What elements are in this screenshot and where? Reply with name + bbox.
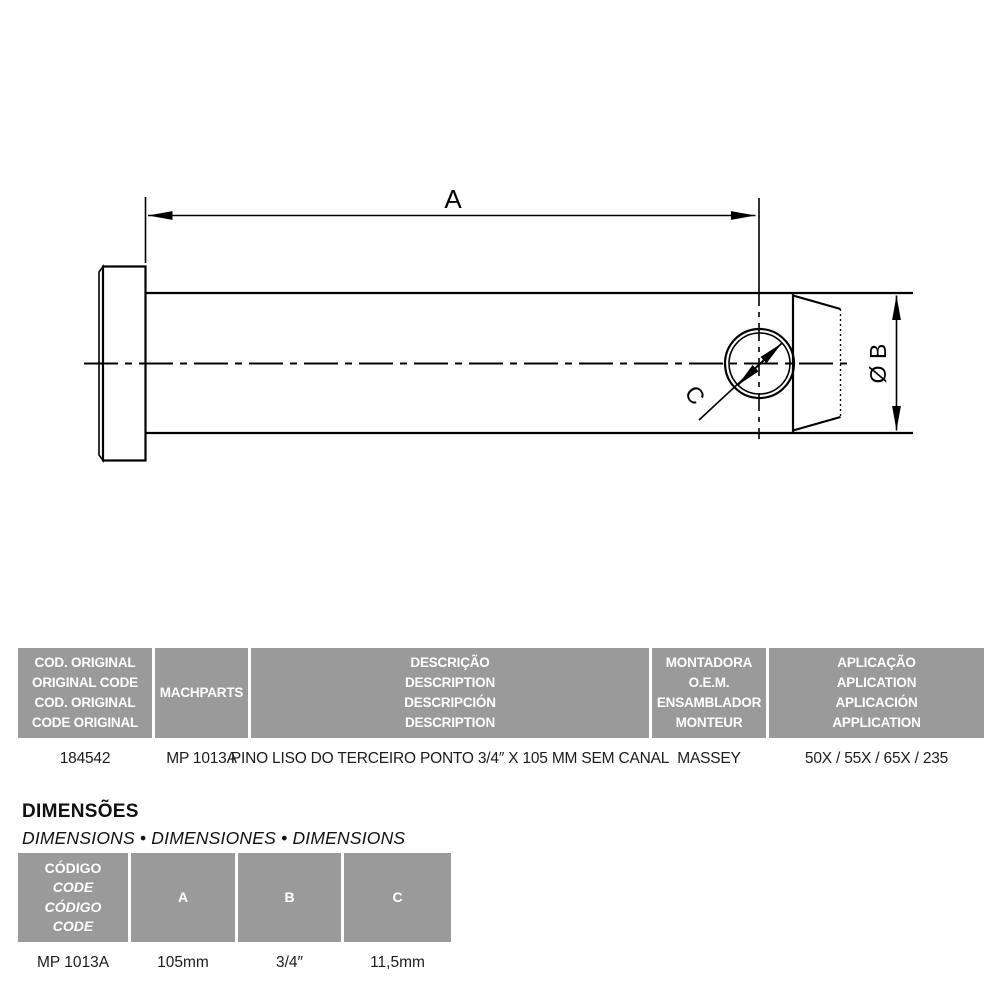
header-cell-oem: MONTADORA O.E.M. ENSAMBLADOR MONTEUR	[652, 648, 766, 738]
header-line: APLICAÇÃO	[837, 653, 915, 673]
pin-tip-chamfer-bottom	[793, 417, 841, 431]
header-line: ENSAMBLADOR	[657, 693, 761, 713]
header-line: MONTEUR	[676, 713, 743, 733]
dimensions-subtitle: DIMENSIONS • DIMENSIONES • DIMENSIONS	[22, 828, 405, 849]
header-cell-machparts: MACHPARTS	[155, 648, 248, 738]
header-line: C	[392, 888, 402, 908]
dim-header-cell-b: B	[238, 853, 341, 942]
dimensions-title: DIMENSÕES	[22, 801, 405, 823]
header-line: CODE ORIGINAL	[32, 713, 138, 733]
pin-technical-drawing: A Ø B C	[0, 0, 1000, 600]
header-line: APPLICATION	[832, 713, 920, 733]
header-line: A	[178, 888, 188, 908]
dim-c-label: C	[680, 380, 711, 409]
header-line: B	[284, 888, 294, 908]
header-cell-description: DESCRIÇÃO DESCRIPTION DESCRIPCIÓN DESCRI…	[251, 648, 649, 738]
header-line: COD. ORIGINAL	[35, 653, 136, 673]
header-line: CÓDIGO	[45, 859, 102, 879]
pin-tip-chamfer-top	[793, 296, 841, 310]
dimensions-table: CÓDIGO CODE CÓDIGO CODE A B C MP 1013A 1…	[18, 853, 451, 980]
dim-cell-code-value: MP 1013A	[18, 946, 128, 980]
product-table: COD. ORIGINAL ORIGINAL CODE COD. ORIGINA…	[18, 648, 984, 777]
header-cell-application: APLICAÇÃO APLICATION APLICACIÓN APPLICAT…	[769, 648, 984, 738]
header-cell-original-code: COD. ORIGINAL ORIGINAL CODE COD. ORIGINA…	[18, 648, 152, 738]
dim-header-cell-code: CÓDIGO CODE CÓDIGO CODE	[18, 853, 128, 942]
cell-oem-value: MASSEY	[652, 741, 766, 777]
header-line: DESCRIPCIÓN	[404, 693, 496, 713]
header-line: DESCRIÇÃO	[410, 653, 489, 673]
header-line: MONTADORA	[666, 653, 752, 673]
header-line: APLICACIÓN	[836, 693, 918, 713]
dim-cell-c-value: 11,5mm	[344, 946, 451, 980]
header-line: O.E.M.	[689, 673, 730, 693]
cell-original-code-value: 184542	[18, 741, 152, 777]
header-line: DESCRIPTION	[405, 713, 495, 733]
dim-cell-b-value: 3/4″	[238, 946, 341, 980]
header-line: MACHPARTS	[160, 683, 243, 703]
header-line: APLICATION	[837, 673, 917, 693]
spec-sheet-page: A Ø B C COD. ORIGINAL ORIGINAL CODE COD.…	[0, 0, 1000, 1000]
dim-header-cell-c: C	[344, 853, 451, 942]
dim-b-label: Ø B	[865, 344, 891, 384]
dim-a-label: A	[444, 184, 462, 214]
header-line: CODE	[53, 878, 93, 898]
dim-header-cell-a: A	[131, 853, 235, 942]
header-line: CÓDIGO	[45, 898, 102, 918]
cell-application-value: 50X / 55X / 65X / 235	[769, 741, 984, 777]
header-line: COD. ORIGINAL	[35, 693, 136, 713]
dimensions-heading: DIMENSÕES DIMENSIONS • DIMENSIONES • DIM…	[22, 801, 405, 849]
header-line: CODE	[53, 917, 93, 937]
cell-description-value: PINO LISO DO TERCEIRO PONTO 3/4″ X 105 M…	[251, 741, 649, 777]
header-line: ORIGINAL CODE	[32, 673, 138, 693]
dim-cell-a-value: 105mm	[131, 946, 235, 980]
header-line: DESCRIPTION	[405, 673, 495, 693]
